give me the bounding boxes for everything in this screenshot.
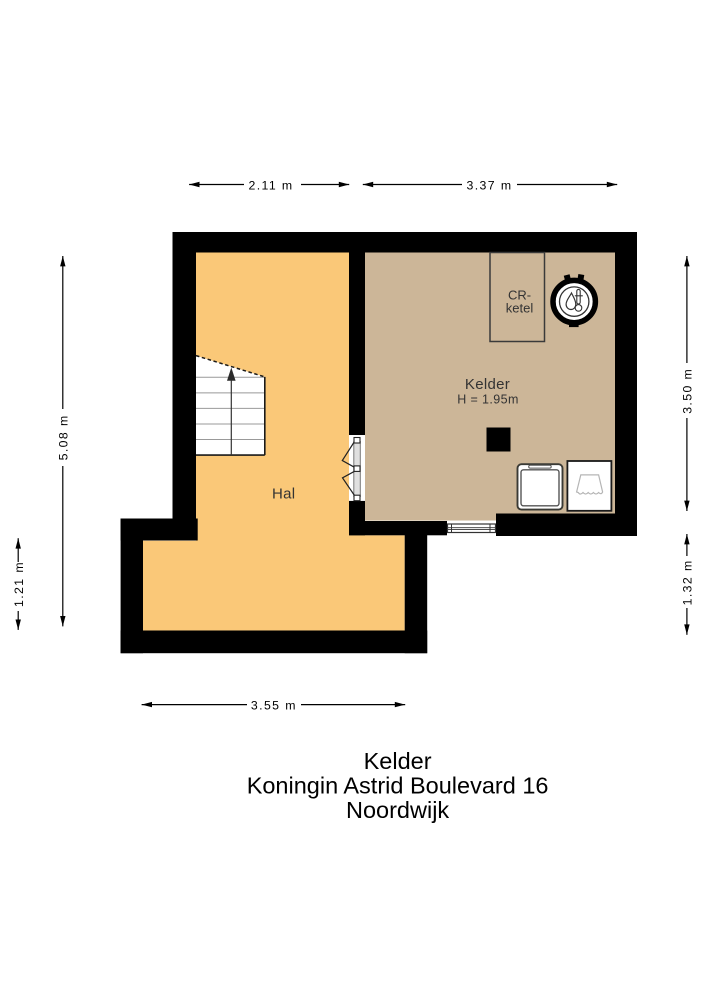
svg-text:3.37 m: 3.37 m [467, 178, 513, 192]
svg-text:1.21 m: 1.21 m [12, 561, 26, 607]
svg-text:Koningin Astrid Boulevard 16: Koningin Astrid Boulevard 16 [247, 773, 549, 799]
svg-text:3.55 m: 3.55 m [251, 698, 297, 712]
svg-text:Kelder: Kelder [364, 748, 432, 774]
svg-text:Kelder: Kelder [465, 376, 510, 393]
svg-text:1.32 m: 1.32 m [681, 559, 695, 605]
svg-text:H = 1.95m: H = 1.95m [457, 393, 519, 407]
svg-text:Hal: Hal [272, 486, 295, 503]
svg-text:5.08 m: 5.08 m [57, 414, 71, 460]
svg-text:2.11 m: 2.11 m [248, 178, 293, 192]
svg-text:Noordwijk: Noordwijk [346, 797, 449, 823]
svg-text:3.50 m: 3.50 m [681, 368, 695, 414]
svg-text:ketel: ketel [506, 301, 534, 316]
